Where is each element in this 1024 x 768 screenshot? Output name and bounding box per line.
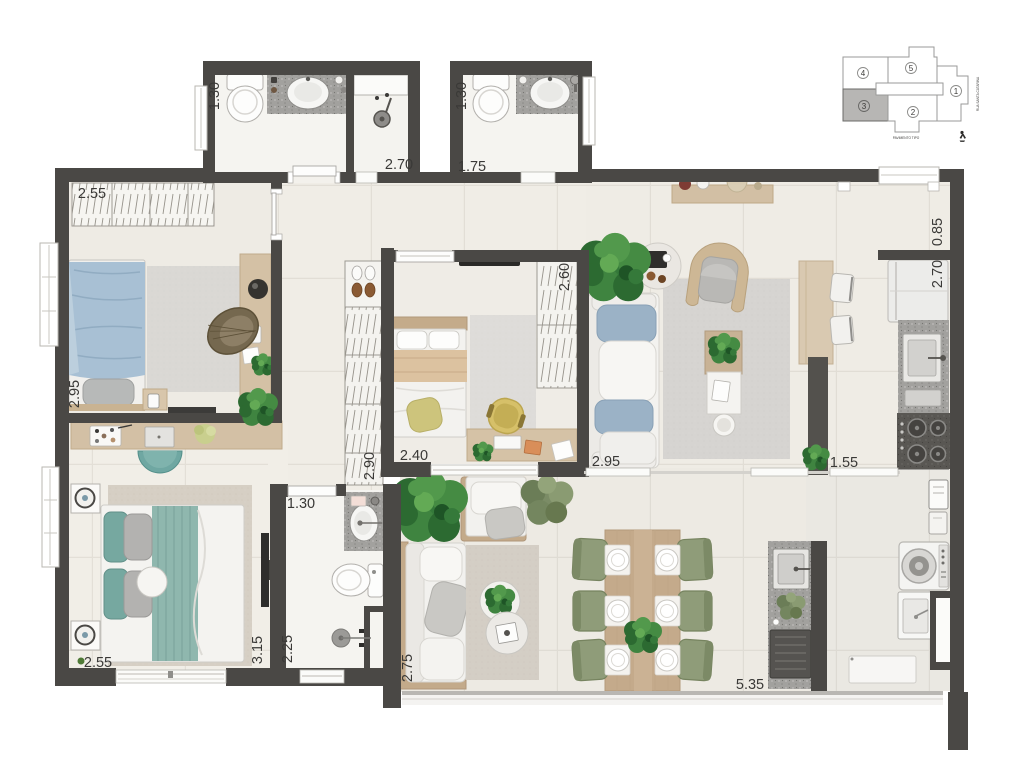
svg-text:4: 4 [861, 69, 866, 78]
svg-text:2.90: 2.90 [362, 452, 378, 480]
svg-text:2.40: 2.40 [400, 448, 428, 464]
svg-text:2.55: 2.55 [84, 655, 112, 671]
svg-text:PAVIMENTO TIPO: PAVIMENTO TIPO [893, 136, 920, 140]
svg-text:1.55: 1.55 [830, 455, 858, 471]
svg-text:1.30: 1.30 [207, 82, 223, 110]
svg-text:2.95: 2.95 [592, 454, 620, 470]
svg-text:2.60: 2.60 [557, 263, 573, 291]
svg-text:RUA SANTA CATARINA: RUA SANTA CATARINA [976, 76, 980, 111]
svg-text:1.75: 1.75 [458, 159, 486, 175]
svg-text:1: 1 [954, 87, 959, 96]
svg-text:5.35: 5.35 [736, 677, 764, 693]
svg-text:3.15: 3.15 [250, 636, 266, 664]
svg-text:2.55: 2.55 [78, 186, 106, 202]
svg-text:2.95: 2.95 [67, 380, 83, 408]
svg-text:2: 2 [911, 108, 916, 117]
svg-text:3: 3 [862, 102, 867, 111]
svg-text:1.30: 1.30 [454, 82, 470, 110]
svg-text:2.70: 2.70 [930, 260, 946, 288]
svg-text:2.70: 2.70 [385, 157, 413, 173]
svg-text:2.25: 2.25 [280, 635, 296, 663]
svg-text:1.30: 1.30 [287, 496, 315, 512]
svg-text:5: 5 [909, 64, 914, 73]
svg-text:0.85: 0.85 [930, 218, 946, 246]
svg-text:2.75: 2.75 [400, 654, 416, 682]
